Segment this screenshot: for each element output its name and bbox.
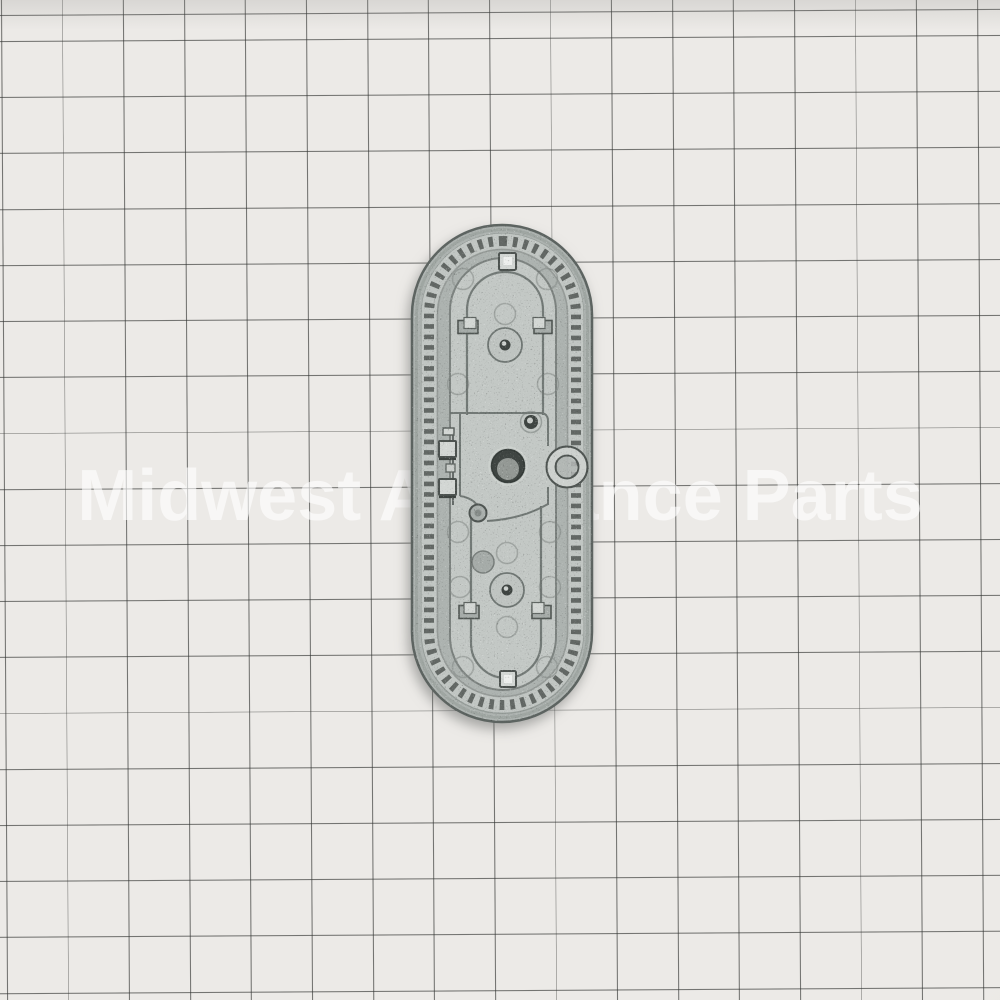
metal-plate-part [405, 218, 599, 729]
photo-scene: Midwest Appliance Parts [0, 0, 1000, 1000]
speckle-texture [405, 218, 599, 729]
metal-plate-photo [0, 0, 1000, 1000]
